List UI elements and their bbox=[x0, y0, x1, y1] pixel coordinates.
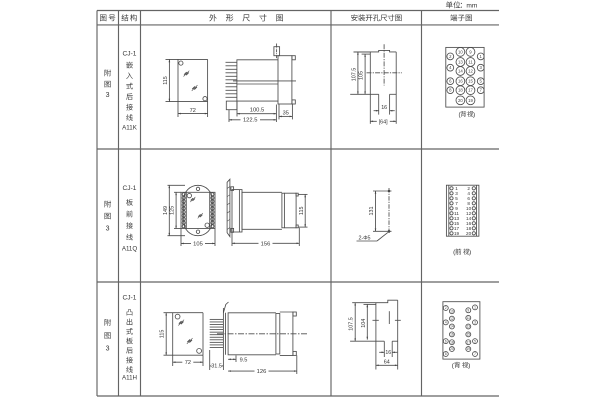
svg-text:16: 16 bbox=[385, 350, 391, 356]
svg-text:CJ-1: CJ-1 bbox=[123, 50, 137, 57]
svg-text:105: 105 bbox=[193, 241, 203, 247]
svg-text:64: 64 bbox=[384, 360, 390, 366]
svg-text:5: 5 bbox=[474, 339, 476, 343]
svg-text:3: 3 bbox=[106, 226, 110, 233]
svg-text:[64]: [64] bbox=[379, 119, 388, 125]
svg-text:): ) bbox=[468, 362, 470, 369]
svg-text:19: 19 bbox=[467, 347, 471, 351]
svg-text:6: 6 bbox=[445, 339, 447, 343]
svg-text:125: 125 bbox=[170, 206, 176, 215]
svg-text:16: 16 bbox=[458, 79, 463, 84]
svg-text:2: 2 bbox=[445, 306, 447, 310]
svg-text:115: 115 bbox=[299, 207, 305, 216]
svg-text:7: 7 bbox=[474, 352, 476, 356]
svg-text:122.5: 122.5 bbox=[243, 118, 258, 124]
svg-text:17: 17 bbox=[468, 88, 473, 93]
svg-text:A11K: A11K bbox=[122, 125, 138, 132]
svg-text:107.5: 107.5 bbox=[351, 68, 357, 82]
svg-text:35: 35 bbox=[283, 110, 289, 116]
svg-text:17: 17 bbox=[467, 340, 471, 344]
svg-text:149: 149 bbox=[163, 206, 169, 215]
svg-text:104: 104 bbox=[361, 319, 367, 328]
svg-text:14: 14 bbox=[458, 69, 463, 74]
svg-text:15: 15 bbox=[467, 333, 471, 337]
svg-text:8: 8 bbox=[445, 352, 447, 356]
svg-text:20: 20 bbox=[450, 347, 454, 351]
svg-text:CJ-1: CJ-1 bbox=[123, 294, 137, 301]
svg-text:20: 20 bbox=[466, 231, 472, 236]
svg-text:1: 1 bbox=[474, 306, 476, 310]
svg-text:13: 13 bbox=[467, 325, 471, 329]
svg-text:11: 11 bbox=[468, 60, 473, 65]
svg-text:3: 3 bbox=[106, 345, 110, 352]
svg-text:156: 156 bbox=[261, 241, 271, 247]
svg-text:10: 10 bbox=[458, 49, 463, 54]
svg-text:72: 72 bbox=[185, 360, 191, 366]
svg-text:16: 16 bbox=[450, 333, 454, 337]
svg-text:A11Q: A11Q bbox=[122, 246, 138, 253]
svg-text:115: 115 bbox=[160, 330, 166, 339]
svg-text:): ) bbox=[473, 111, 475, 118]
svg-text:131: 131 bbox=[369, 207, 375, 216]
svg-text:CJ-1: CJ-1 bbox=[123, 185, 137, 192]
svg-text:12: 12 bbox=[450, 317, 454, 321]
svg-text:4: 4 bbox=[445, 321, 447, 325]
svg-text:107.5: 107.5 bbox=[349, 317, 355, 331]
svg-text:16: 16 bbox=[381, 105, 387, 111]
svg-text:2-Φ5: 2-Φ5 bbox=[358, 236, 370, 242]
svg-text:9: 9 bbox=[467, 308, 469, 312]
svg-text:19: 19 bbox=[468, 98, 473, 103]
svg-text:115: 115 bbox=[163, 76, 169, 85]
svg-text:12: 12 bbox=[468, 69, 473, 74]
svg-text:105: 105 bbox=[359, 71, 365, 80]
svg-text:126: 126 bbox=[257, 369, 267, 375]
svg-text:14: 14 bbox=[450, 325, 454, 329]
svg-text:31.5: 31.5 bbox=[211, 363, 222, 369]
svg-text:13: 13 bbox=[458, 60, 463, 65]
svg-text:20: 20 bbox=[458, 98, 463, 103]
svg-text:11: 11 bbox=[467, 316, 471, 320]
svg-text:3: 3 bbox=[474, 321, 476, 325]
svg-text:mm: mm bbox=[466, 3, 477, 10]
svg-text:10: 10 bbox=[450, 309, 454, 313]
svg-text:100.5: 100.5 bbox=[250, 108, 265, 114]
svg-text:18: 18 bbox=[458, 88, 463, 93]
svg-text:3: 3 bbox=[106, 92, 110, 99]
svg-text:9.5: 9.5 bbox=[240, 357, 248, 363]
svg-text:A11H: A11H bbox=[122, 375, 137, 382]
svg-text:72: 72 bbox=[190, 108, 196, 114]
svg-text:15: 15 bbox=[468, 79, 473, 84]
svg-text:): ) bbox=[469, 249, 471, 256]
svg-text:18: 18 bbox=[450, 340, 454, 344]
svg-text:19: 19 bbox=[454, 231, 460, 236]
